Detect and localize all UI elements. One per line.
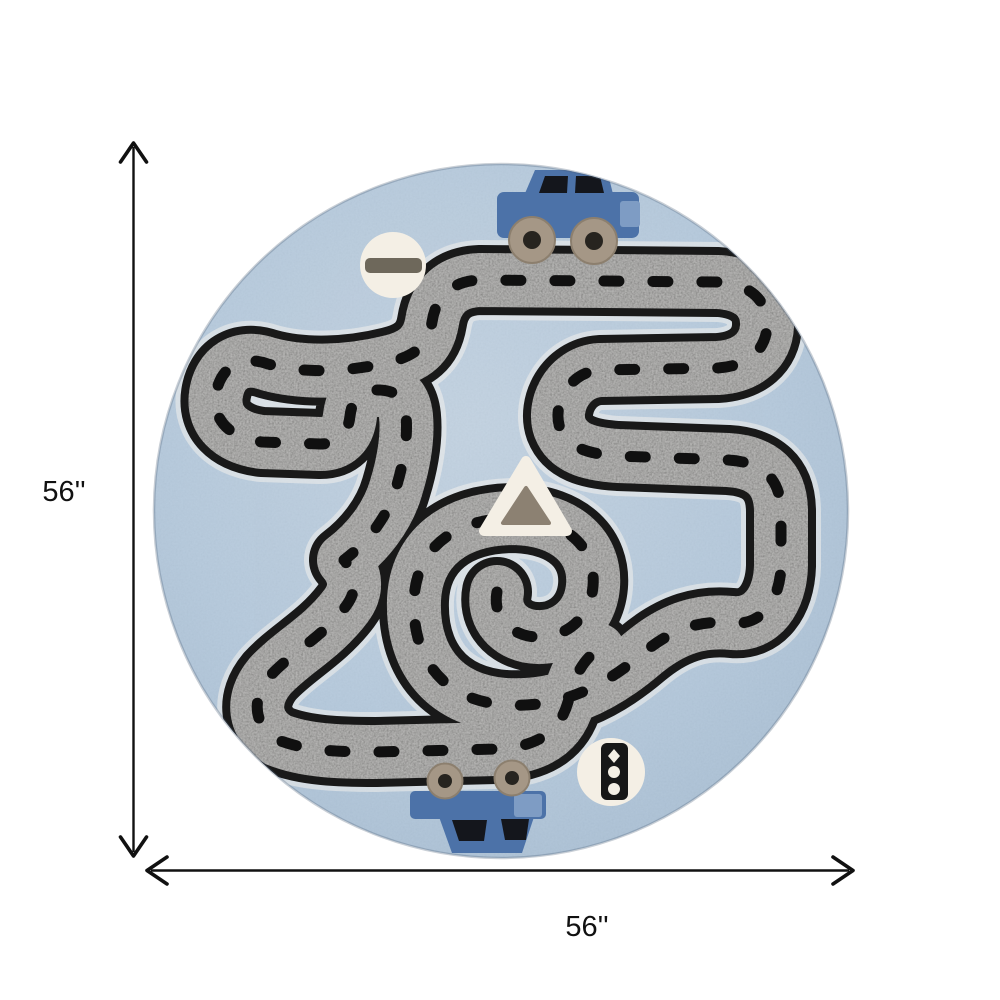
no-entry-sign-icon: [360, 232, 426, 298]
rug-image: [120, 130, 880, 870]
width-dimension-arrow: [147, 857, 853, 884]
height-dimension-label: 56'': [42, 476, 85, 508]
height-dimension-arrow: [121, 143, 147, 856]
product-dimension-figure: 56'' 56'': [0, 0, 1000, 1000]
figure-canvas: 56'' 56'': [0, 0, 1000, 1000]
traffic-light-icon: [577, 738, 645, 806]
width-dimension-label: 56'': [565, 911, 608, 943]
